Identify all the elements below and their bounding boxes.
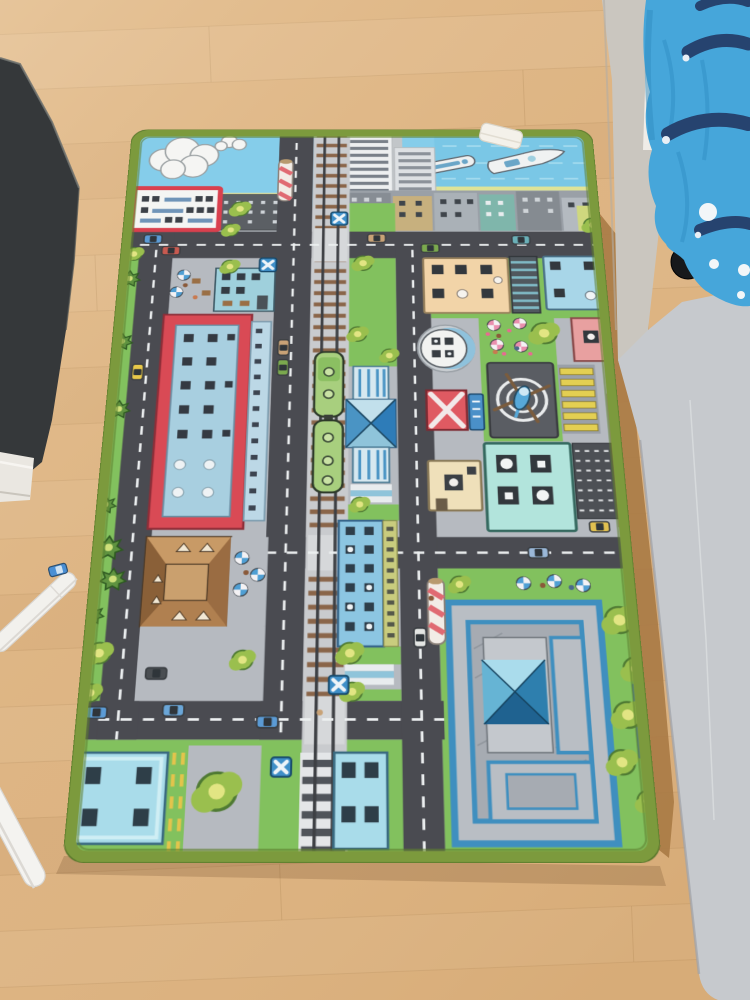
- photo-stage: [0, 0, 750, 1000]
- blue-house-right: [333, 753, 388, 849]
- cafe-building: [214, 268, 276, 311]
- green-train: [313, 352, 344, 492]
- peach-building: [423, 258, 510, 313]
- red-frame-building: [148, 315, 272, 529]
- teal-building: [484, 443, 577, 531]
- solar-roof-building: [509, 256, 540, 312]
- railway-station: [346, 366, 396, 482]
- house-terrace: [227, 537, 269, 626]
- road-top: [120, 232, 604, 259]
- sign-board: [469, 394, 485, 430]
- rug-design: [62, 129, 662, 863]
- striped-pole-bottom: [427, 578, 446, 644]
- red-kiosk: [426, 390, 484, 430]
- apartment-building: [338, 521, 399, 647]
- supermarket: [131, 188, 221, 230]
- cream-shop: [428, 461, 482, 511]
- school-pyramid-roof: [482, 660, 549, 724]
- striped-pole-top: [278, 159, 294, 201]
- brown-roof-house: [140, 537, 231, 626]
- helipad: [487, 363, 558, 438]
- play-rug: [62, 129, 662, 863]
- school-complex: [448, 603, 619, 844]
- yellow-crosswalk: [557, 365, 600, 434]
